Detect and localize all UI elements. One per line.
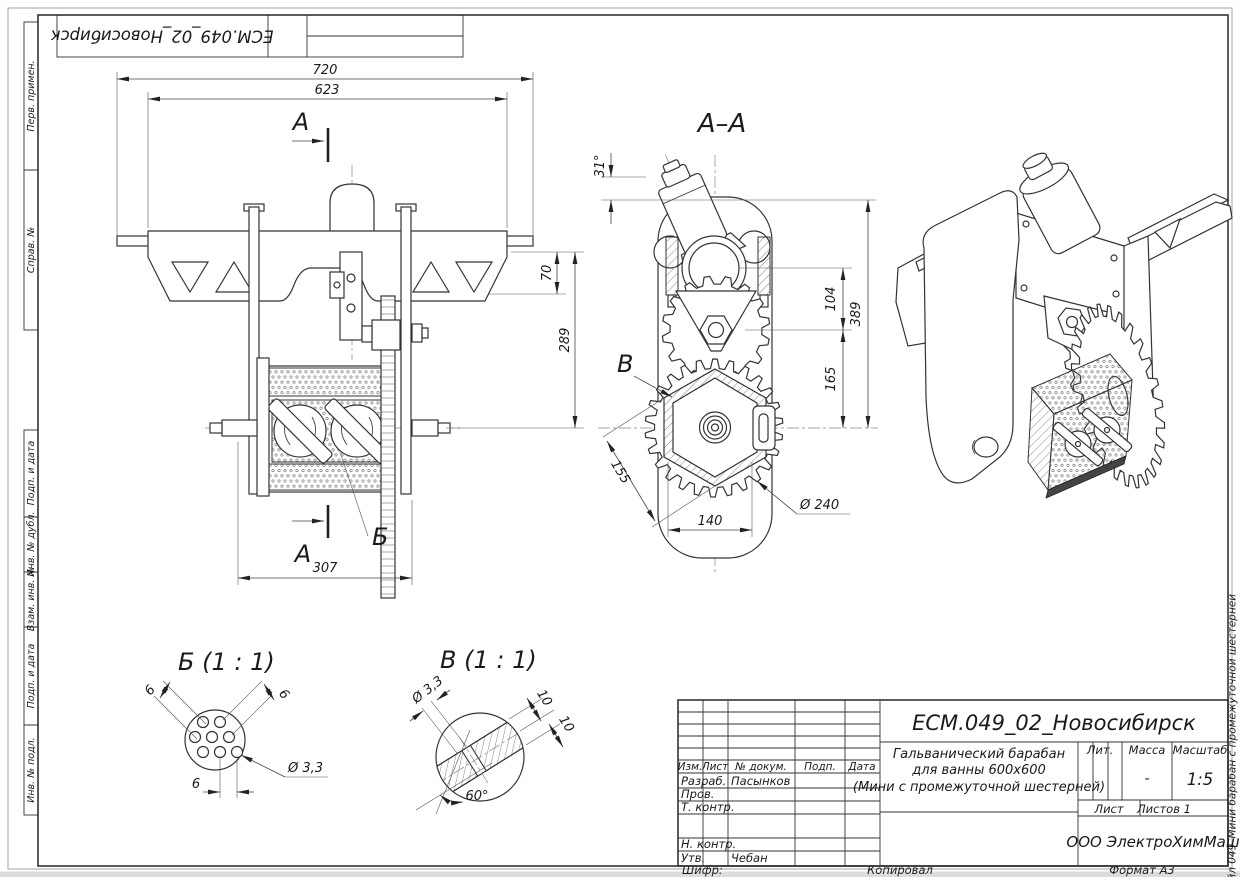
detail-letter-b: Б — [372, 523, 388, 551]
tb-val-razrab: Пасынков — [731, 774, 791, 788]
iso-left-plate — [923, 191, 1019, 483]
tb-row-prov: Пров. — [681, 787, 714, 801]
front-view: 720 623 70 289 307 А А Б — [117, 63, 584, 598]
dim-10b: 10 — [555, 713, 576, 735]
tb-name-line3: (Мини с промежуточной шестерней) — [853, 780, 1105, 795]
dim-6c: 6 — [192, 777, 200, 792]
tb-row-nkontr: Н. контр. — [681, 837, 736, 851]
footer-shifr: Шифр: — [682, 863, 723, 877]
dim-720: 720 — [313, 63, 338, 78]
top-stamp: ЕСМ.049_02_Новосибирск — [50, 15, 463, 57]
tb-name-line1: Гальванический барабан — [893, 747, 1066, 762]
dim-31deg: 31° — [593, 154, 608, 177]
margin-label-inv-podl: Инв. № подл. — [26, 737, 37, 803]
title-block: ЕСМ.049_02_Новосибирск Гальванический ба… — [678, 700, 1240, 866]
margin-fields: Перв. примен. Справ. № Подп. и дата Инв.… — [24, 22, 38, 815]
section-title: А–А — [696, 109, 747, 139]
dim-v-d33: Ø 3,3 — [409, 674, 447, 708]
tb-listov-label: Листов 1 — [1136, 802, 1191, 816]
dim-10a: 10 — [533, 687, 554, 709]
dim-6a: 6 — [142, 683, 159, 699]
detail-letter-v: В — [617, 350, 633, 378]
drawing-sheet: ЕСМ.049_02_Новосибирск Перв. примен. Спр… — [0, 0, 1240, 877]
tb-company: ООО ЭлектроХимМаш — [1066, 833, 1239, 851]
tb-list-label: Лист — [1093, 802, 1123, 816]
drum-front — [210, 358, 390, 496]
tb-massa-value: - — [1144, 771, 1149, 787]
stamp-designation: ЕСМ.049_02_Новосибирск — [50, 26, 273, 46]
sheet-bottom-edge — [0, 872, 1240, 877]
tb-col-ndoc: № докум. — [734, 761, 787, 773]
tb-masshtab-value: 1:5 — [1187, 770, 1214, 789]
dim-70: 70 — [540, 265, 555, 282]
detail-v-view: В (1 : 1) Ø 3,3 10 — [409, 646, 577, 814]
margin-label-vzam-inv: Взам. инв. № — [26, 567, 37, 632]
dim-60deg: 60° — [465, 789, 488, 804]
dim-289: 289 — [558, 328, 573, 353]
section-view-a-a: А–А — [593, 109, 878, 575]
center-post — [330, 184, 374, 233]
dim-623: 623 — [315, 83, 340, 98]
tb-masshtab-label: Масштаб — [1173, 743, 1228, 757]
footer-kopiroval: Копировал — [867, 863, 933, 877]
margin-label-podp-data-2: Подп. и дата — [26, 643, 37, 708]
dim-b-d33: Ø 3,3 — [287, 761, 323, 776]
dim-6b: 6 — [275, 687, 292, 703]
dim-307: 307 — [313, 561, 339, 576]
dim-165: 165 — [824, 367, 839, 392]
iso-view — [896, 144, 1232, 498]
detail-b-view: Б (1 : 1) 6 6 6 Ø 3,3 — [142, 648, 328, 798]
dim-389: 389 — [849, 302, 864, 327]
footer-format: Формат А3 — [1109, 863, 1175, 877]
dim-104: 104 — [824, 287, 839, 312]
detail-b-title: Б (1 : 1) — [178, 648, 275, 676]
tb-col-izm: Изм. — [678, 761, 703, 773]
tb-row-tkontr: Т. контр. — [681, 800, 735, 814]
dim-140: 140 — [698, 514, 723, 529]
tb-lit-label: Лит. — [1086, 743, 1113, 757]
margin-label-sprav-n: Справ. № — [26, 227, 37, 273]
margin-label-perv-primen: Перв. примен. — [26, 60, 37, 131]
tb-row-utv: Утв. — [681, 851, 705, 865]
dim-d240: Ø 240 — [799, 498, 839, 513]
detail-b-dimensions: 6 6 6 Ø 3,3 — [142, 681, 328, 798]
right-side-plate — [401, 207, 411, 494]
tb-name-line2: для ванны 600x600 — [911, 763, 1046, 778]
tb-col-podp: Подп. — [804, 761, 836, 773]
tb-col-data: Дата — [847, 761, 875, 773]
tb-row-razrab: Разраб. — [681, 774, 726, 788]
section-letter-top: А — [291, 108, 309, 136]
pinion-edge — [372, 320, 400, 350]
detail-v-title: В (1 : 1) — [440, 646, 537, 674]
section-letter-bottom: А — [293, 540, 311, 568]
tb-col-list: Лист — [701, 761, 729, 773]
tb-massa-label: Масса — [1129, 743, 1166, 757]
margin-label-podp-data-1: Подп. и дата — [26, 440, 37, 505]
tb-designation: ЕСМ.049_02_Новосибирск — [912, 711, 1196, 736]
tb-val-utv: Чебан — [731, 851, 768, 865]
dim-155: 155 — [607, 458, 633, 487]
